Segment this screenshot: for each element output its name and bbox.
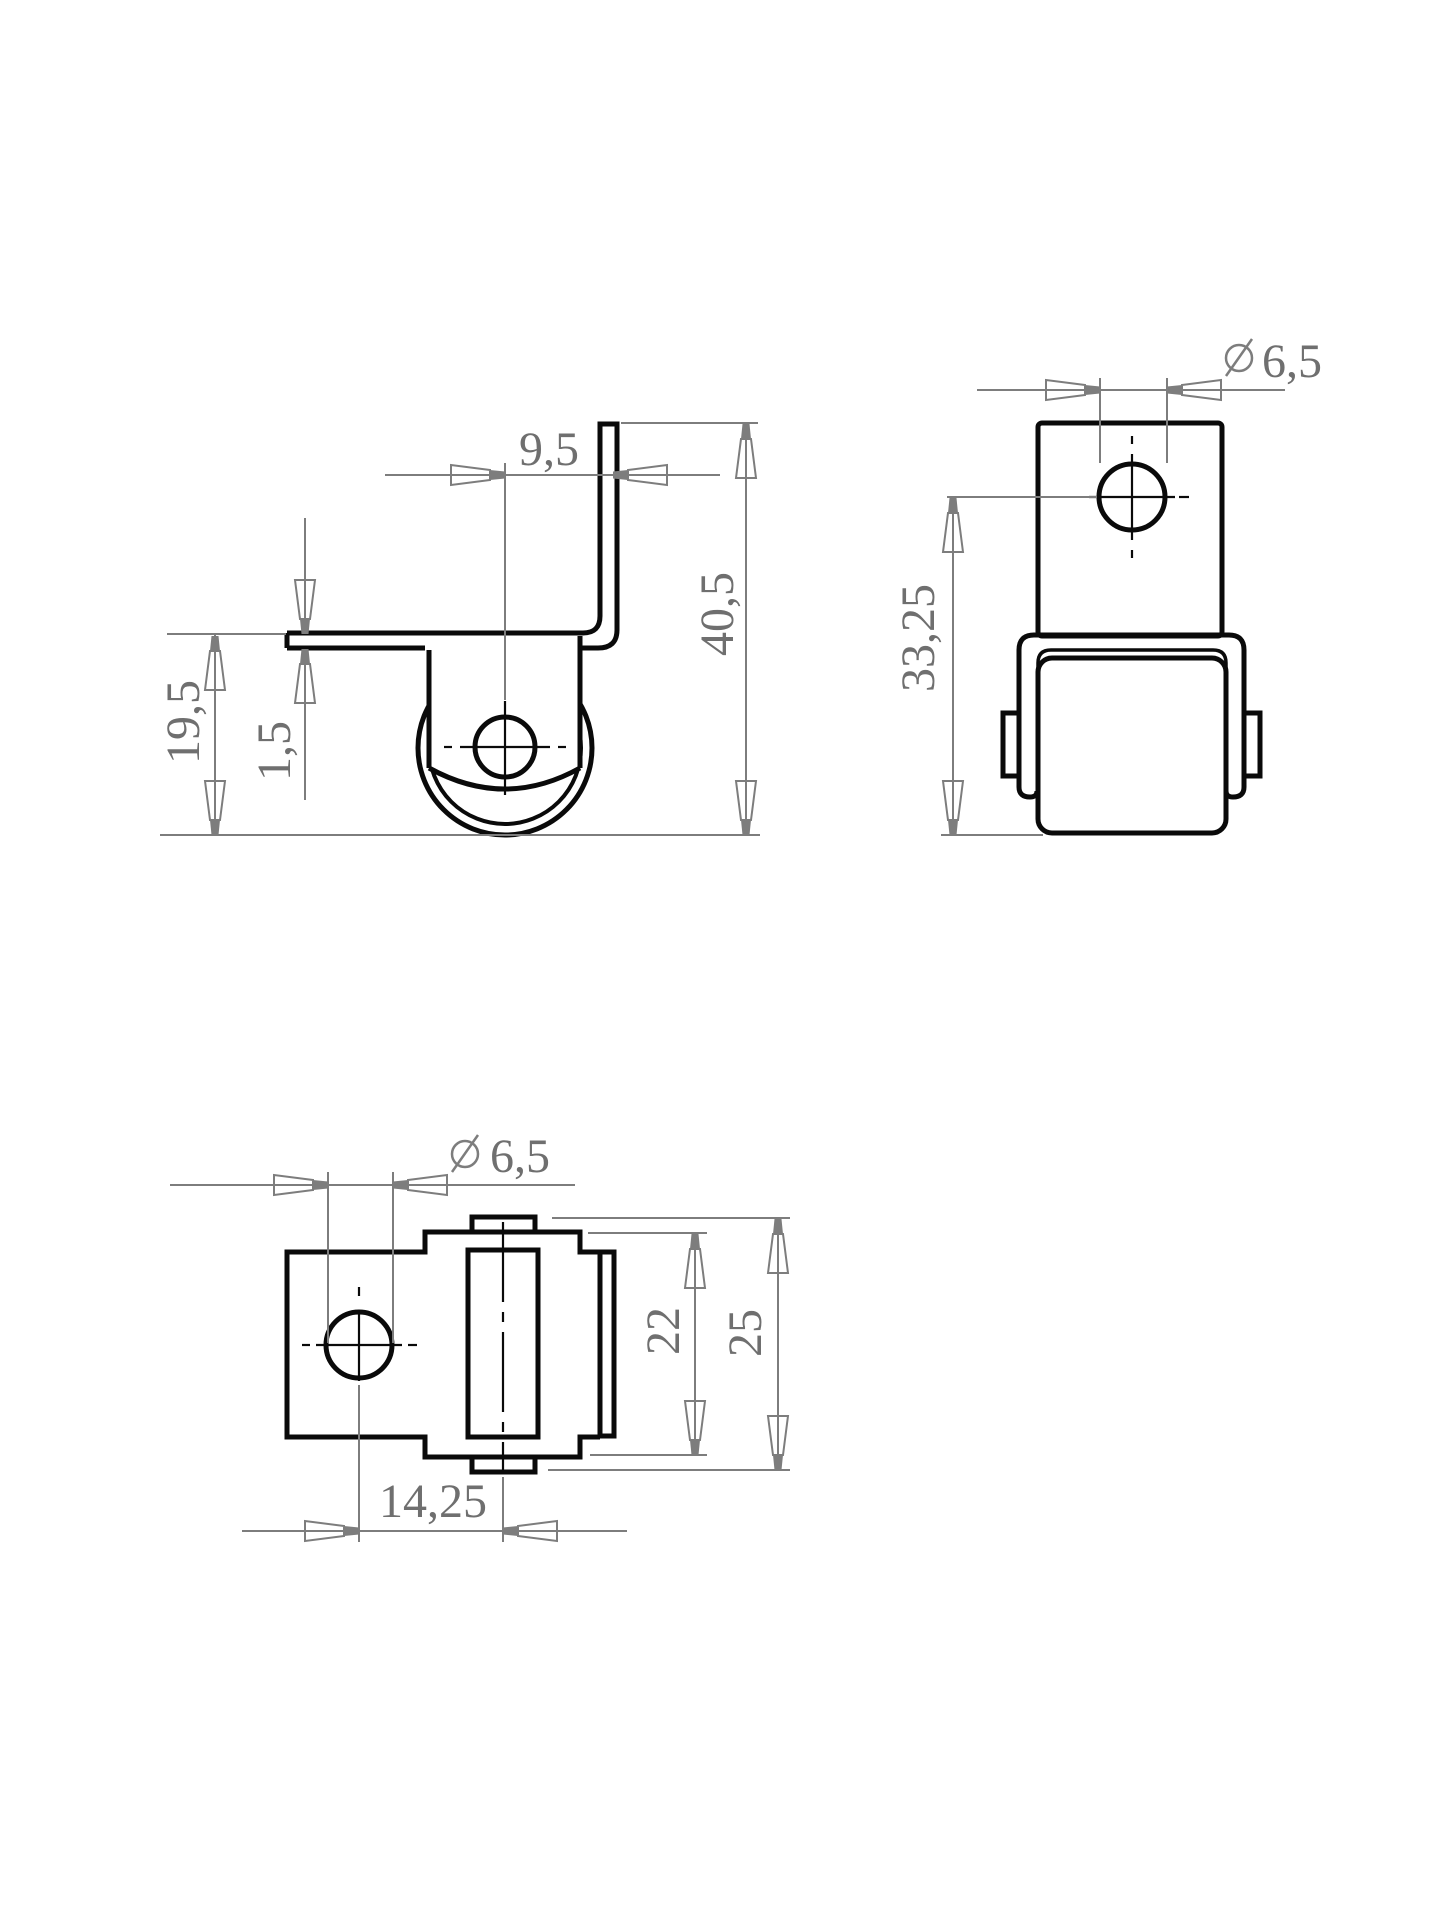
- dim-text-33-25: 33,25: [892, 584, 945, 692]
- axle-tab-right: [1244, 713, 1260, 776]
- hole-centerlines-top: [302, 1287, 417, 1381]
- caster-bracket-drawing: 9,5 40,5 19,5 1,5: [0, 0, 1440, 1920]
- top-view: 6,5 14,25 22 25: [170, 1130, 790, 1542]
- axle-tab-left: [1003, 713, 1019, 776]
- front-view: 6,5 33,25: [892, 335, 1322, 835]
- cad-drawing-sheet: 9,5 40,5 19,5 1,5: [0, 0, 1440, 1920]
- dim-text-1-5: 1,5: [248, 721, 301, 781]
- dim-text-14-25: 14,25: [379, 1475, 487, 1528]
- dim-text-dia65-front: 6,5: [1262, 335, 1322, 388]
- dim-text-25: 25: [719, 1309, 772, 1357]
- hole-centerlines-front: [1089, 436, 1189, 558]
- dim-text-19-5: 19,5: [157, 680, 210, 764]
- flange-edge-top: [600, 1252, 614, 1436]
- dim-text-9-5: 9,5: [519, 423, 579, 476]
- dim-text-dia65-top: 6,5: [490, 1130, 550, 1183]
- dim-text-40-5: 40,5: [691, 572, 744, 656]
- side-view: 9,5 40,5 19,5 1,5: [157, 423, 760, 835]
- dim-text-22: 22: [637, 1307, 690, 1355]
